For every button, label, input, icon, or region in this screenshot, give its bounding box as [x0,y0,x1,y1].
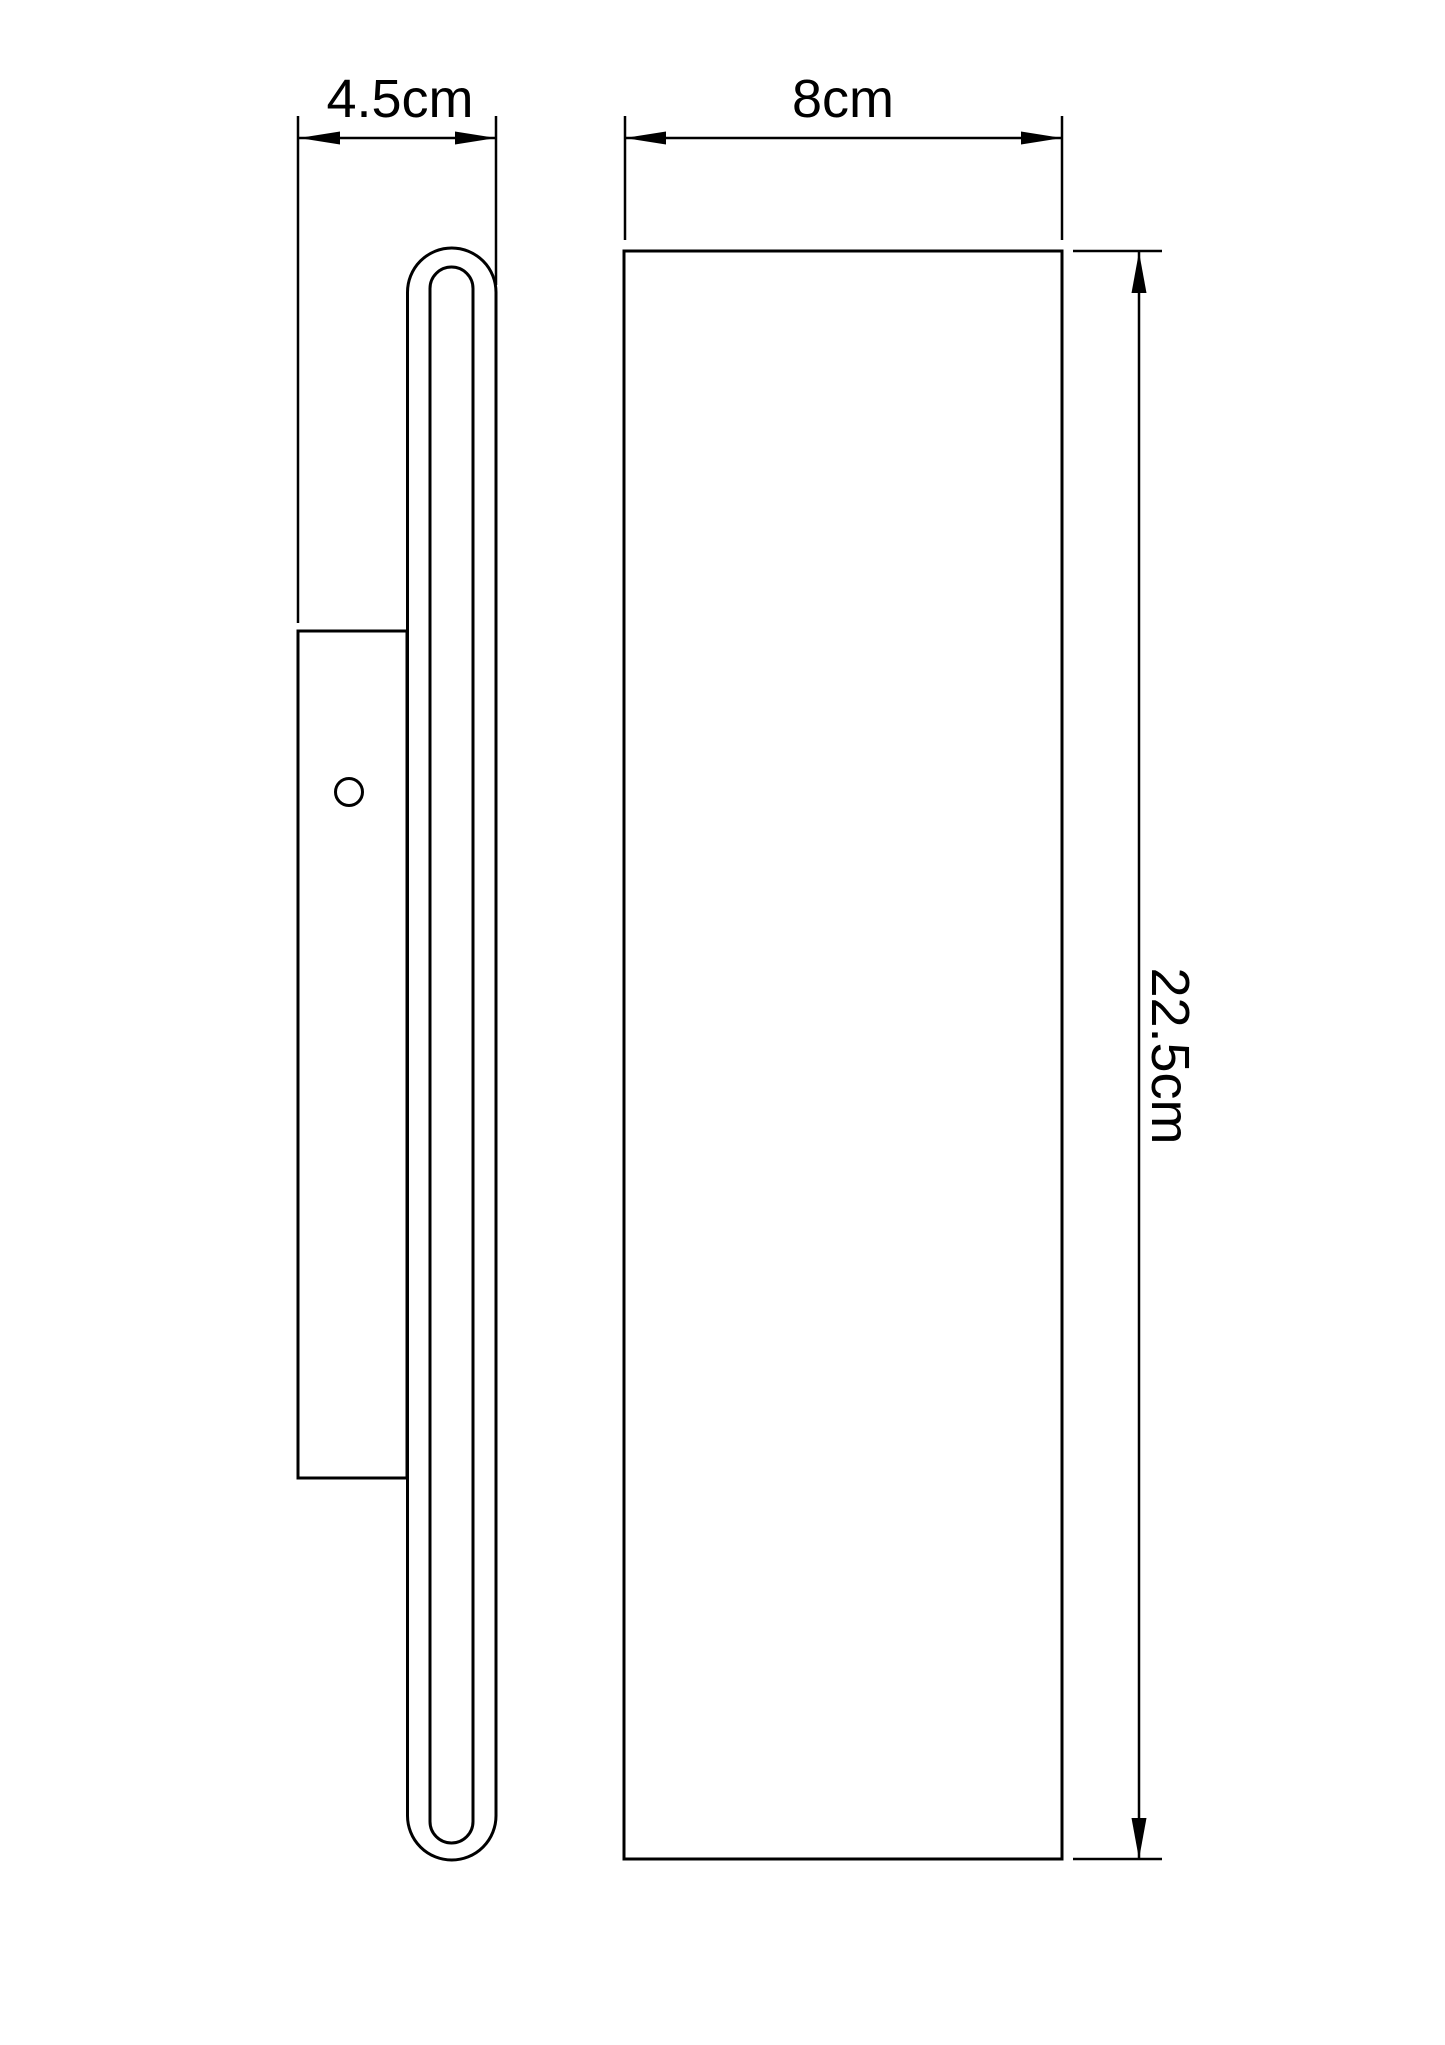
lamp-body-outer-profile [408,248,497,1860]
lamp-front-face [624,251,1062,1859]
arrowhead-up-icon [1132,252,1147,293]
side-view: 4.5cm [298,69,496,1860]
front-width-dimension-label: 8cm [792,69,894,129]
arrowhead-right-icon [1021,132,1062,145]
screw-hole [336,779,363,806]
side-width-dimension-label: 4.5cm [326,69,473,129]
arrowhead-left-icon [625,132,666,145]
front-height-dimension-label: 22.5cm [1140,967,1200,1144]
arrowhead-right-icon [455,132,496,145]
lamp-body-inner-profile [430,267,473,1843]
mounting-plate [298,631,407,1478]
arrowhead-left-icon [299,132,340,145]
drawing-svg: 4.5cm 8cm [0,0,1445,2045]
dimension-drawing: 4.5cm 8cm [0,0,1445,2045]
arrowhead-down-icon [1132,1818,1147,1859]
front-view: 8cm 22.5cm [624,69,1200,1859]
